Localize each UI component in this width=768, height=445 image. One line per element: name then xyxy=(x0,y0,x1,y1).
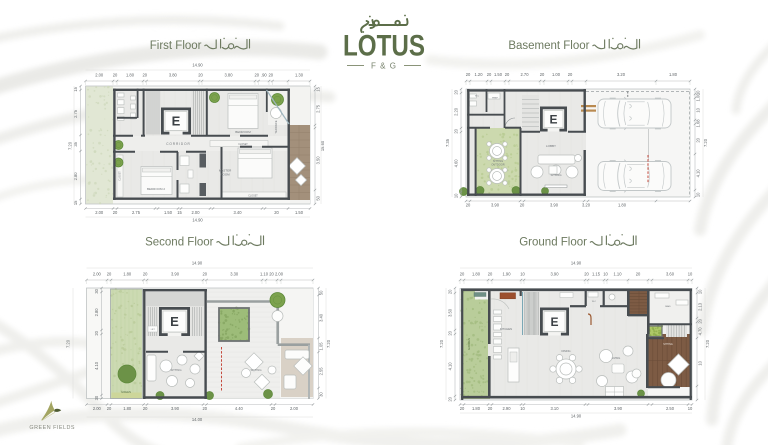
svg-text:14.90: 14.90 xyxy=(192,63,203,68)
svg-text:30: 30 xyxy=(319,392,324,397)
svg-text:2.00: 2.00 xyxy=(192,210,201,215)
svg-text:30: 30 xyxy=(94,288,99,293)
svg-text:SITTING: SITTING xyxy=(250,368,261,372)
svg-text:10: 10 xyxy=(520,272,525,277)
svg-text:2.80: 2.80 xyxy=(94,308,99,317)
svg-text:3.80: 3.80 xyxy=(169,73,178,78)
svg-text:2.75: 2.75 xyxy=(316,104,321,113)
svg-text:4.40: 4.40 xyxy=(235,406,244,411)
svg-text:4.10: 4.10 xyxy=(448,362,453,371)
svg-text:W.C: W.C xyxy=(475,96,480,98)
svg-text:2.00: 2.00 xyxy=(93,272,102,277)
svg-text:OUTDOOR: OUTDOOR xyxy=(491,163,504,167)
svg-text:.90: .90 xyxy=(261,73,267,78)
svg-text:7.20: 7.20 xyxy=(66,339,71,348)
svg-text:15: 15 xyxy=(73,200,78,205)
svg-text:CLOSET: CLOSET xyxy=(248,195,258,198)
svg-text:10: 10 xyxy=(520,406,525,411)
svg-text:2.75: 2.75 xyxy=(132,210,141,215)
svg-text:10: 10 xyxy=(696,192,701,197)
svg-text:20: 20 xyxy=(540,72,545,77)
svg-text:20: 20 xyxy=(520,203,525,208)
svg-text:15: 15 xyxy=(177,210,182,215)
svg-text:20: 20 xyxy=(94,330,99,335)
svg-text:3.90: 3.90 xyxy=(171,406,180,411)
svg-text:2.13: 2.13 xyxy=(698,302,703,311)
svg-text:20: 20 xyxy=(143,272,148,277)
svg-text:Second Floor: Second Floor xyxy=(145,237,214,249)
svg-text:20: 20 xyxy=(269,272,274,277)
svg-text:2.00: 2.00 xyxy=(95,73,104,78)
svg-text:3.90: 3.90 xyxy=(614,406,623,411)
svg-text:10: 10 xyxy=(698,360,703,365)
svg-text:1.10: 1.10 xyxy=(614,272,623,277)
svg-text:20: 20 xyxy=(505,72,510,77)
svg-text:CLOSET: CLOSET xyxy=(238,143,248,146)
svg-text:1.30: 1.30 xyxy=(295,73,304,78)
svg-text:TERRACE: TERRACE xyxy=(274,120,278,133)
svg-text:20: 20 xyxy=(568,72,573,77)
svg-text:1.80: 1.80 xyxy=(618,203,627,208)
svg-text:3.20: 3.20 xyxy=(617,72,626,77)
svg-text:1.80: 1.80 xyxy=(123,272,132,277)
svg-text:DINING: DINING xyxy=(561,349,570,353)
svg-text:1.80: 1.80 xyxy=(472,272,481,277)
svg-text:MAID: MAID xyxy=(665,305,671,308)
svg-text:20: 20 xyxy=(454,128,459,133)
svg-text:14.90: 14.90 xyxy=(192,218,203,223)
svg-text:7.20: 7.20 xyxy=(705,339,710,348)
svg-text:14.00: 14.00 xyxy=(192,417,203,422)
svg-text:GARDEN: GARDEN xyxy=(467,338,471,350)
svg-text:3.30: 3.30 xyxy=(230,272,239,277)
svg-text:15: 15 xyxy=(73,86,78,91)
svg-text:14.90: 14.90 xyxy=(192,261,203,266)
svg-text:3.10: 3.10 xyxy=(551,406,560,411)
svg-text:2.00: 2.00 xyxy=(95,210,104,215)
svg-text:14.90: 14.90 xyxy=(571,261,582,266)
svg-text:3.60: 3.60 xyxy=(666,272,675,277)
svg-text:3.50: 3.50 xyxy=(448,308,453,317)
svg-text:2.20: 2.20 xyxy=(454,107,459,116)
svg-text:20: 20 xyxy=(274,210,279,215)
svg-text:F & G: F & G xyxy=(371,62,397,71)
svg-text:W.C: W.C xyxy=(592,301,597,303)
svg-text:10: 10 xyxy=(688,272,693,277)
svg-text:1.00: 1.00 xyxy=(696,93,701,102)
svg-text:20: 20 xyxy=(448,289,453,294)
svg-text:20: 20 xyxy=(271,406,276,411)
svg-text:3.40: 3.40 xyxy=(319,313,324,322)
svg-text:35: 35 xyxy=(73,141,78,146)
svg-text:3.90: 3.90 xyxy=(491,203,500,208)
svg-text:2.00: 2.00 xyxy=(290,406,299,411)
svg-text:30: 30 xyxy=(94,395,99,400)
svg-text:1.05: 1.05 xyxy=(319,342,324,351)
svg-text:20: 20 xyxy=(466,203,471,208)
svg-text:E: E xyxy=(170,314,179,329)
svg-text:2.80: 2.80 xyxy=(73,172,78,181)
svg-text:1.00: 1.00 xyxy=(552,72,561,77)
svg-text:10: 10 xyxy=(698,289,703,294)
svg-text:BEDROOM: BEDROOM xyxy=(235,130,251,134)
svg-text:E: E xyxy=(550,315,558,329)
svg-text:2.75: 2.75 xyxy=(73,109,78,118)
svg-text:SITTING: SITTING xyxy=(170,368,181,372)
svg-text:20: 20 xyxy=(113,73,118,78)
svg-text:14.90: 14.90 xyxy=(571,414,582,419)
svg-text:3.50: 3.50 xyxy=(316,156,321,165)
svg-text:GREEN FIELDS: GREEN FIELDS xyxy=(29,425,75,431)
svg-text:20: 20 xyxy=(488,406,493,411)
svg-text:20: 20 xyxy=(488,272,493,277)
svg-text:LOBBY: LOBBY xyxy=(546,144,556,148)
svg-text:SITTING: SITTING xyxy=(493,159,503,163)
svg-text:1.68: 1.68 xyxy=(696,119,701,128)
svg-text:20: 20 xyxy=(460,272,465,277)
svg-text:SITTING: SITTING xyxy=(550,173,561,177)
svg-text:3.90: 3.90 xyxy=(550,203,559,208)
svg-text:3.80: 3.80 xyxy=(225,73,234,78)
svg-text:20: 20 xyxy=(198,73,203,78)
svg-text:3.40: 3.40 xyxy=(234,210,243,215)
svg-text:20: 20 xyxy=(636,272,641,277)
svg-text:1.20: 1.20 xyxy=(475,72,484,77)
svg-text:CLOSET: CLOSET xyxy=(119,171,122,181)
svg-text:First Floor: First Floor xyxy=(150,40,202,52)
svg-text:10: 10 xyxy=(696,107,701,112)
svg-text:50: 50 xyxy=(316,195,321,200)
svg-text:1.80: 1.80 xyxy=(126,73,135,78)
svg-text:20: 20 xyxy=(143,406,148,411)
svg-text:20: 20 xyxy=(698,318,703,323)
svg-text:2.00: 2.00 xyxy=(93,406,102,411)
svg-text:LIVING: LIVING xyxy=(612,356,621,360)
svg-text:Basement Floor: Basement Floor xyxy=(508,40,589,52)
svg-text:Ground Floor: Ground Floor xyxy=(519,237,587,249)
svg-text:10: 10 xyxy=(688,406,693,411)
svg-text:1.80: 1.80 xyxy=(123,406,132,411)
svg-text:GREEN: GREEN xyxy=(121,390,131,394)
svg-text:2.90: 2.90 xyxy=(503,406,512,411)
svg-text:1.90: 1.90 xyxy=(503,272,512,277)
svg-text:20: 20 xyxy=(460,406,465,411)
svg-text:2.50: 2.50 xyxy=(666,406,675,411)
svg-text:4.60: 4.60 xyxy=(454,159,459,168)
svg-text:20: 20 xyxy=(487,72,492,77)
svg-text:1.50: 1.50 xyxy=(494,72,503,77)
svg-text:E: E xyxy=(549,112,557,126)
svg-text:7.35: 7.35 xyxy=(445,138,450,147)
svg-text:20: 20 xyxy=(107,406,112,411)
svg-text:15: 15 xyxy=(316,86,321,91)
svg-text:20: 20 xyxy=(584,272,589,277)
svg-text:7.20: 7.20 xyxy=(703,138,708,147)
svg-text:2.00: 2.00 xyxy=(275,272,284,277)
svg-text:10: 10 xyxy=(454,193,459,198)
svg-text:10: 10 xyxy=(603,272,608,277)
svg-text:2.70: 2.70 xyxy=(521,72,530,77)
svg-text:PREP: PREP xyxy=(492,98,498,100)
svg-text:20: 20 xyxy=(203,272,208,277)
svg-text:KITCHEN: KITCHEN xyxy=(500,327,512,331)
svg-text:20: 20 xyxy=(448,330,453,335)
svg-text:1.15: 1.15 xyxy=(592,272,601,277)
svg-text:BEDROOM 2: BEDROOM 2 xyxy=(147,187,165,191)
svg-text:ROOM: ROOM xyxy=(220,173,230,177)
svg-text:SITTING: SITTING xyxy=(663,343,673,346)
svg-text:2.55: 2.55 xyxy=(319,367,324,376)
svg-text:4.10: 4.10 xyxy=(94,361,99,370)
svg-text:20: 20 xyxy=(255,73,260,78)
svg-text:1.50: 1.50 xyxy=(295,210,304,215)
svg-text:50: 50 xyxy=(319,290,324,295)
svg-text:7.20: 7.20 xyxy=(326,339,331,348)
svg-text:20: 20 xyxy=(696,137,701,142)
svg-text:4.10: 4.10 xyxy=(696,169,701,178)
svg-text:3.90: 3.90 xyxy=(551,272,560,277)
svg-text:20: 20 xyxy=(113,210,118,215)
svg-text:7.20: 7.20 xyxy=(68,141,73,150)
svg-text:1.80: 1.80 xyxy=(669,72,678,77)
svg-text:20: 20 xyxy=(466,72,471,77)
svg-text:LOTUS: LOTUS xyxy=(343,29,425,62)
svg-text:20: 20 xyxy=(107,272,112,277)
svg-text:20: 20 xyxy=(269,73,274,78)
svg-text:20: 20 xyxy=(143,73,148,78)
svg-text:15.60: 15.60 xyxy=(320,140,325,151)
svg-text:1.10: 1.10 xyxy=(260,272,269,277)
svg-text:1.80: 1.80 xyxy=(472,406,481,411)
svg-text:E: E xyxy=(172,114,181,129)
svg-text:20: 20 xyxy=(448,396,453,401)
svg-text:1.50: 1.50 xyxy=(164,210,173,215)
svg-text:3.90: 3.90 xyxy=(171,272,180,277)
svg-text:20: 20 xyxy=(203,406,208,411)
svg-text:20: 20 xyxy=(454,89,459,94)
svg-text:4.70: 4.70 xyxy=(698,327,703,336)
svg-text:C O R R I D O R: C O R R I D O R xyxy=(166,142,190,146)
svg-text:3.20: 3.20 xyxy=(582,203,591,208)
svg-text:7.20: 7.20 xyxy=(439,339,444,348)
